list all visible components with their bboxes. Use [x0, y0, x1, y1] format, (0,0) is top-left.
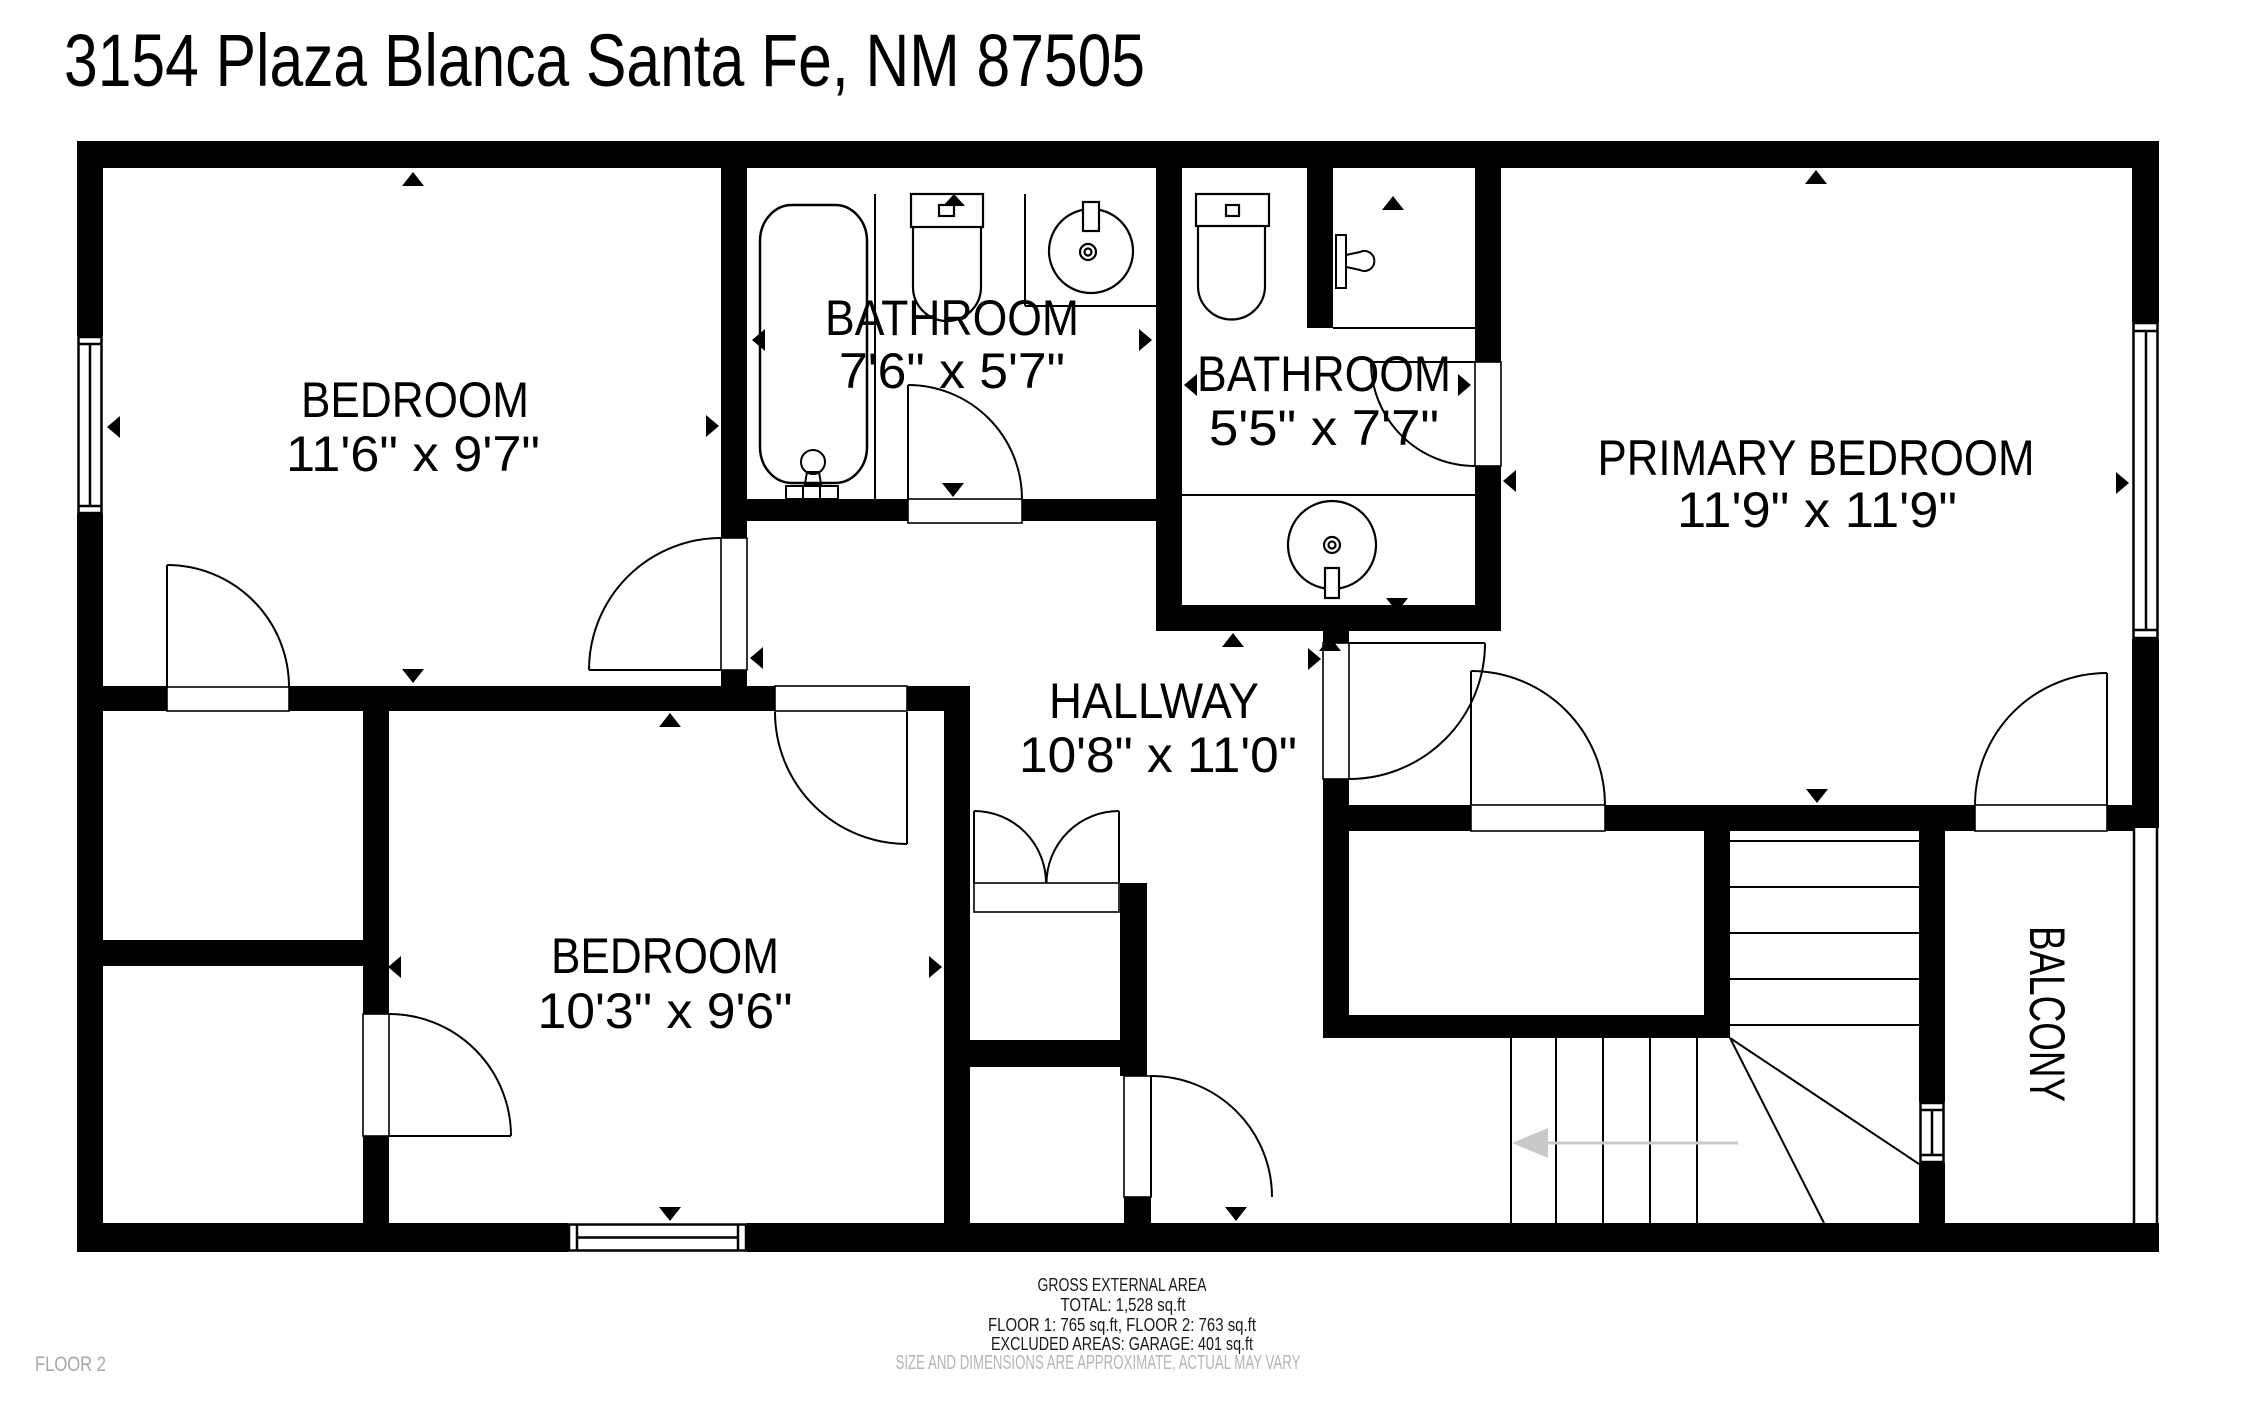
svg-text:TOTAL: 1,528 sq.ft: TOTAL: 1,528 sq.ft [1061, 1295, 1186, 1315]
svg-text:FLOOR 2: FLOOR 2 [35, 1353, 106, 1376]
svg-text:5'5" x 7'7": 5'5" x 7'7" [1209, 400, 1439, 456]
svg-text:11'6" x 9'7": 11'6" x 9'7" [286, 426, 540, 482]
svg-text:FLOOR 1: 765 sq.ft, FLOOR 2: 7: FLOOR 1: 765 sq.ft, FLOOR 2: 763 sq.ft [988, 1315, 1256, 1335]
svg-text:BATHROOM: BATHROOM [825, 290, 1079, 346]
svg-text:10'8" x 11'0": 10'8" x 11'0" [1019, 727, 1297, 783]
svg-text:BALCONY: BALCONY [2019, 926, 2075, 1102]
svg-text:HALLWAY: HALLWAY [1049, 673, 1259, 729]
svg-text:PRIMARY BEDROOM: PRIMARY BEDROOM [1598, 430, 2035, 486]
svg-text:BATHROOM: BATHROOM [1197, 346, 1451, 402]
svg-text:EXCLUDED AREAS: GARAGE: 401 sq: EXCLUDED AREAS: GARAGE: 401 sq.ft [991, 1334, 1253, 1354]
svg-text:7'6" x 5'7": 7'6" x 5'7" [839, 343, 1065, 399]
svg-text:3154 Plaza Blanca Santa Fe, NM: 3154 Plaza Blanca Santa Fe, NM 87505 [64, 19, 1145, 102]
svg-text:GROSS EXTERNAL AREA: GROSS EXTERNAL AREA [1038, 1275, 1207, 1295]
svg-text:BEDROOM: BEDROOM [551, 928, 779, 984]
svg-text:10'3" x 9'6": 10'3" x 9'6" [538, 983, 793, 1039]
svg-text:SIZE AND DIMENSIONS ARE APPROX: SIZE AND DIMENSIONS ARE APPROXIMATE, ACT… [896, 1352, 1301, 1374]
svg-text:11'9" x 11'9": 11'9" x 11'9" [1677, 482, 1957, 538]
svg-text:BEDROOM: BEDROOM [301, 372, 529, 428]
